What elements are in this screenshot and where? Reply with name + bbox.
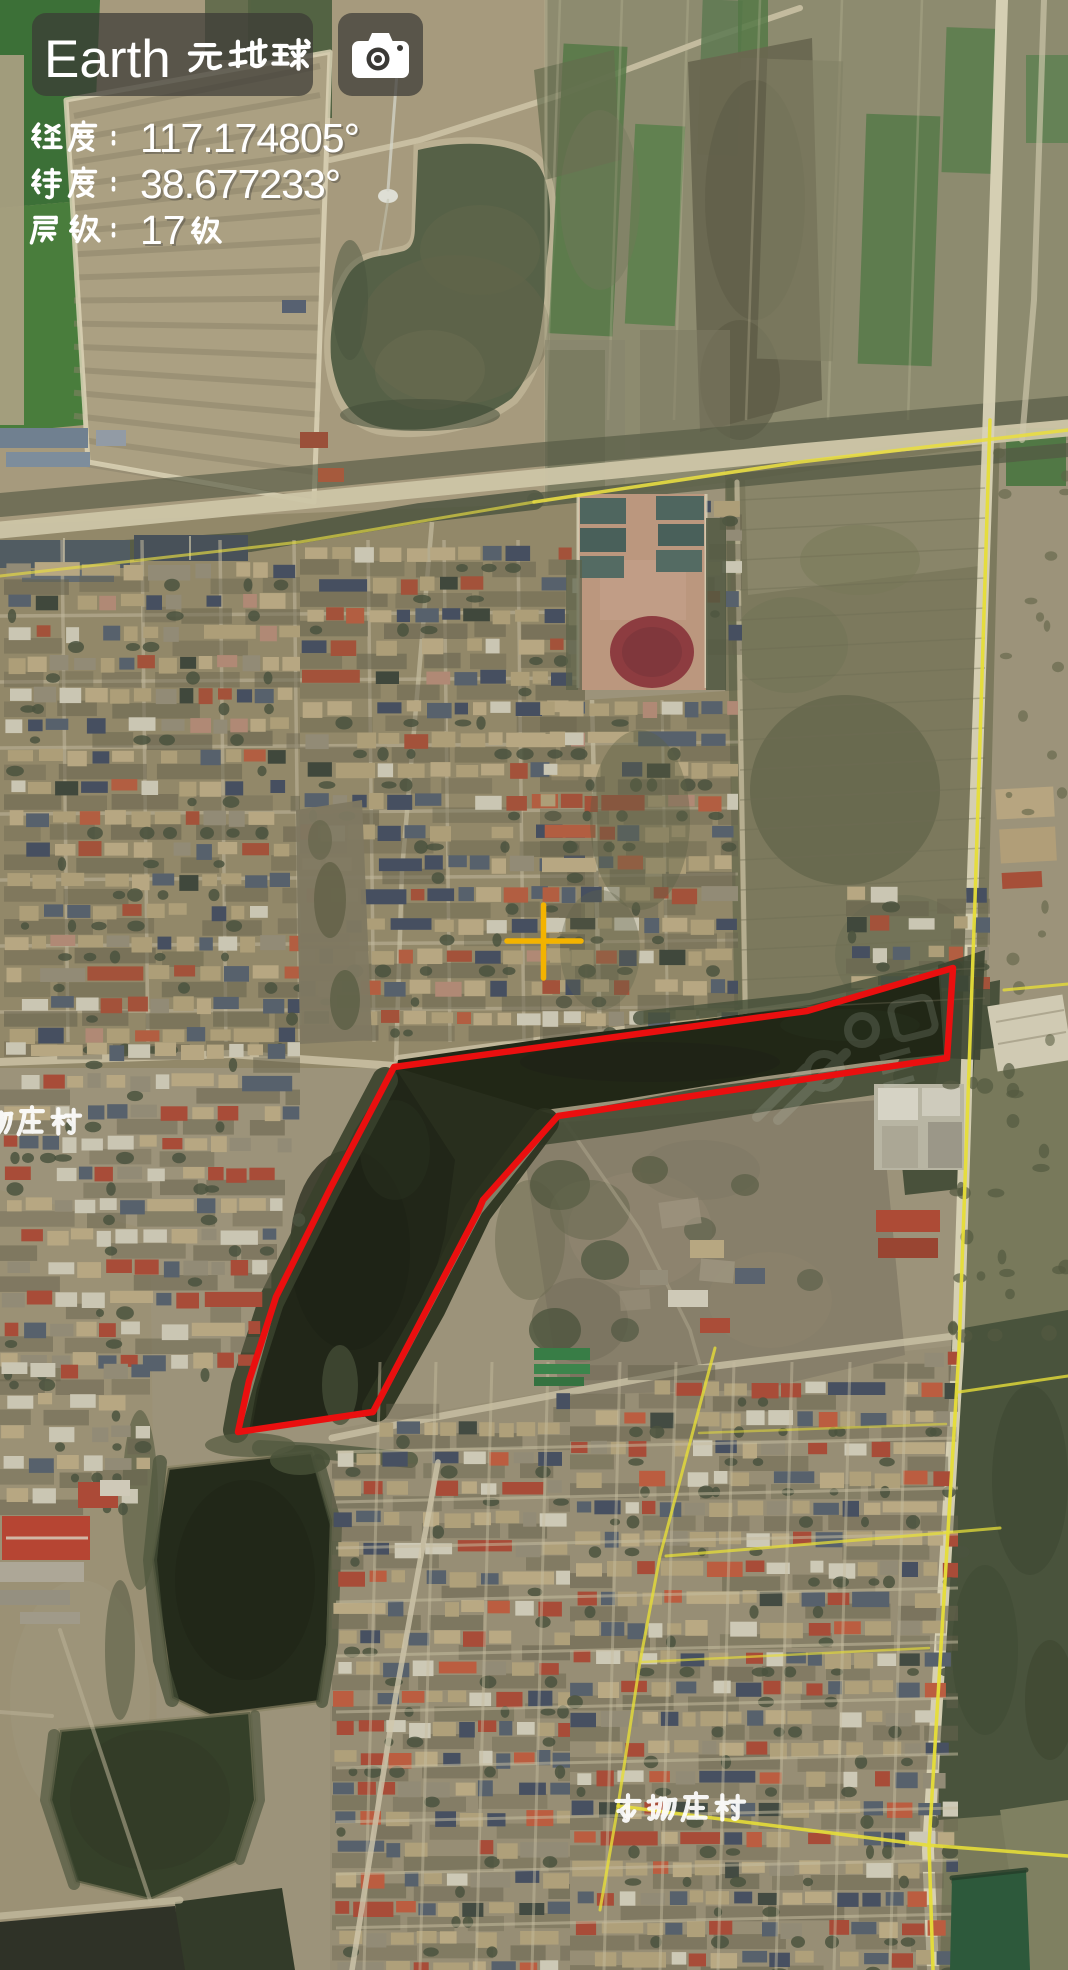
svg-text:38.677233°: 38.677233° (140, 161, 340, 207)
svg-text:17: 17 (140, 207, 186, 253)
svg-text:Earth: Earth (44, 30, 171, 89)
svg-text:117.174805°: 117.174805° (140, 115, 359, 161)
